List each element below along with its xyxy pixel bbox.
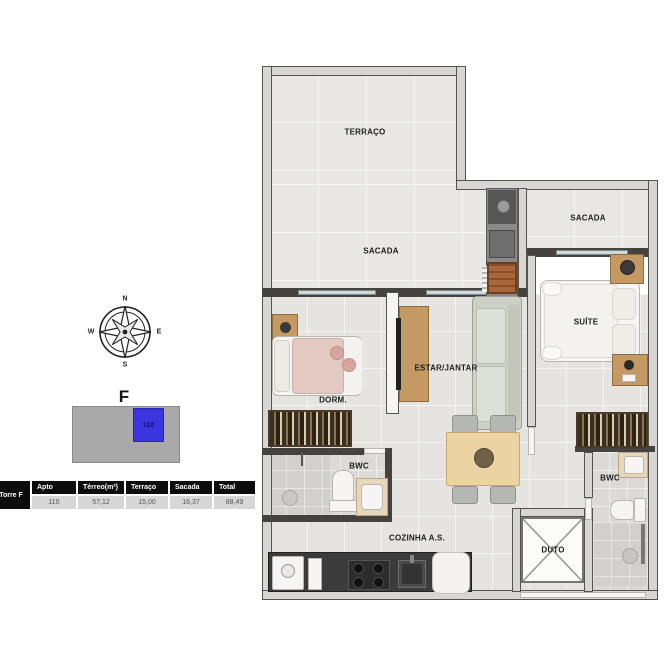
kitchen-faucet bbox=[410, 555, 414, 563]
toilet-tank-social bbox=[329, 500, 357, 512]
wall-duto-top bbox=[512, 508, 593, 517]
stove-burner-2 bbox=[373, 563, 384, 574]
shower-drain-suite bbox=[622, 548, 638, 564]
table-plant bbox=[474, 448, 494, 468]
shower-column bbox=[301, 452, 303, 466]
bwc-suite-door-leaf bbox=[585, 498, 592, 520]
room-label-dorm: DORM. bbox=[319, 396, 347, 405]
dorm-bed-pillow bbox=[274, 340, 290, 392]
suite-bolster-1 bbox=[542, 282, 562, 296]
compass-south-label: S bbox=[123, 362, 128, 369]
table-val-apto: 110 bbox=[32, 496, 76, 509]
unit-highlight: 110 bbox=[133, 408, 164, 442]
dorm-wardrobe bbox=[268, 410, 352, 447]
dining-chair-3 bbox=[452, 486, 478, 504]
room-label-sacada-main: SACADA bbox=[363, 247, 398, 256]
table-val-terraco: 15,00 bbox=[126, 496, 168, 509]
floorplan-page: TERRAÇO SACADA SACADA DORM. ESTAR/JANTAR… bbox=[0, 0, 665, 665]
compass-rose: N S W E bbox=[96, 303, 154, 361]
tv-screen bbox=[396, 318, 401, 390]
table-val-sacada: 16,37 bbox=[170, 496, 212, 509]
stove-burner-1 bbox=[353, 563, 364, 574]
table-row-header: Torre F bbox=[0, 481, 30, 509]
toilet-bowl-social bbox=[332, 470, 354, 502]
wall-bwc-bottom bbox=[262, 515, 392, 522]
wall-living-suite bbox=[527, 255, 536, 427]
suite-desk-object bbox=[624, 360, 634, 370]
table-col-terreo: Térreo(m²) bbox=[78, 481, 124, 494]
dorm-round-cushion-1 bbox=[330, 346, 344, 360]
suite-wardrobe bbox=[576, 412, 648, 448]
table-val-total: 88,49 bbox=[214, 496, 255, 509]
wall-duto-left bbox=[512, 508, 521, 592]
tower-letter: F bbox=[119, 387, 129, 407]
stove-burner-3 bbox=[353, 577, 364, 588]
compass-east-label: E bbox=[157, 329, 162, 336]
suite-speaker bbox=[620, 260, 635, 275]
table-col-apto: Apto bbox=[32, 481, 76, 494]
shower-bar-suite bbox=[641, 524, 645, 564]
compass-rose-icon bbox=[96, 303, 154, 361]
table-col-total: Total bbox=[214, 481, 255, 494]
bwc-social-shower-floor bbox=[268, 452, 330, 518]
wall-right-outer bbox=[648, 180, 658, 600]
stove-burner-4 bbox=[373, 577, 384, 588]
unit-highlight-number: 110 bbox=[143, 422, 154, 429]
toilet-bowl-suite bbox=[610, 500, 634, 520]
room-label-suite: SUÍTE bbox=[574, 318, 599, 327]
grill-sink-basin bbox=[497, 200, 510, 213]
area-summary-table: Torre F Apto Térreo(m²) Terraço Sacada T… bbox=[0, 481, 255, 509]
table-col-sacada: Sacada bbox=[170, 481, 212, 494]
tv-panel bbox=[399, 306, 429, 402]
suite-pillow-1 bbox=[612, 288, 636, 320]
dining-chair-1 bbox=[452, 415, 478, 433]
service-cabinet bbox=[308, 558, 322, 590]
bwc-suite-shower-floor bbox=[593, 522, 648, 586]
suite-door-leaf bbox=[528, 427, 535, 455]
wall-dorm-bwc bbox=[262, 448, 364, 455]
wall-balcony-divider bbox=[518, 188, 527, 292]
grill-skewers bbox=[482, 266, 487, 292]
wall-terrace-top bbox=[262, 66, 466, 76]
suite-bolster-2 bbox=[542, 346, 562, 360]
table-val-terreo: 57,12 bbox=[78, 496, 124, 509]
balcony-main-floor bbox=[270, 184, 518, 290]
room-label-cozinha: COZINHA A.S. bbox=[389, 534, 445, 543]
washing-machine-door bbox=[281, 564, 295, 578]
bottom-service-window bbox=[520, 592, 646, 598]
dorm-lamp bbox=[280, 322, 291, 333]
bwc-suite-sink bbox=[624, 456, 644, 474]
wall-terrace-right bbox=[456, 66, 466, 188]
compass-north-label: N bbox=[122, 296, 127, 303]
room-label-bwc-social: BWC bbox=[349, 462, 369, 471]
sofa-cushion-2 bbox=[476, 366, 506, 422]
sofa-backrest bbox=[508, 304, 520, 422]
table-header-row: Apto Térreo(m²) Terraço Sacada Total bbox=[32, 481, 255, 494]
dorm-round-cushion-2 bbox=[342, 358, 356, 372]
sofa-cushion-1 bbox=[476, 308, 506, 364]
table-body: Apto Térreo(m²) Terraço Sacada Total 110… bbox=[32, 481, 255, 509]
room-label-terraco: TERRAÇO bbox=[345, 128, 386, 137]
table-value-row: 110 57,12 15,00 16,37 88,49 bbox=[32, 496, 255, 509]
room-label-duto: DUTO bbox=[541, 546, 564, 555]
barbecue-grill bbox=[487, 262, 517, 294]
toilet-tank-suite bbox=[634, 498, 646, 522]
room-label-sacada-suite: SACADA bbox=[570, 214, 605, 223]
wall-duto-right bbox=[584, 508, 593, 592]
fridge bbox=[432, 552, 470, 594]
room-label-estar-jantar: ESTAR/JANTAR bbox=[415, 364, 478, 373]
compass-west-label: W bbox=[88, 329, 95, 336]
shower-drain-social bbox=[282, 490, 298, 506]
suite-desk-paper bbox=[622, 374, 636, 382]
bwc-social-sink bbox=[361, 484, 383, 510]
tower-footprint-key: 110 bbox=[72, 406, 180, 463]
kitchen-sink-basin bbox=[402, 564, 422, 584]
dining-chair-4 bbox=[490, 486, 516, 504]
grill-cabinet bbox=[489, 230, 515, 258]
room-label-bwc-suite: BWC bbox=[600, 474, 620, 483]
suite-pillow-2 bbox=[612, 324, 636, 356]
dorm-sliding-door-glass bbox=[298, 290, 376, 295]
wall-bwc-suite-left bbox=[584, 452, 593, 498]
table-col-terraco: Terraço bbox=[126, 481, 168, 494]
dining-chair-2 bbox=[490, 415, 516, 433]
